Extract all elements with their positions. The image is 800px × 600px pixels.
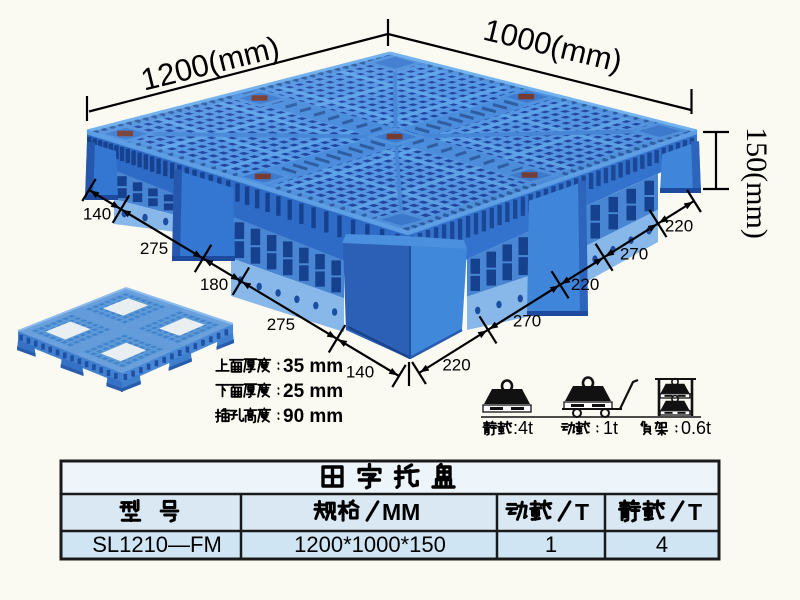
svg-text:220: 220	[665, 216, 693, 235]
svg-text:220: 220	[571, 275, 599, 294]
svg-text:4: 4	[656, 532, 668, 557]
svg-text:T: T	[688, 499, 702, 525]
svg-text:1200*1000*150: 1200*1000*150	[294, 532, 446, 557]
svg-text:1t: 1t	[603, 418, 618, 438]
svg-text:140: 140	[346, 362, 374, 381]
svg-text:150(mm): 150(mm)	[740, 127, 773, 239]
svg-text:275: 275	[140, 239, 168, 258]
svg-text:T: T	[575, 499, 589, 525]
svg-text:0.6t: 0.6t	[681, 418, 711, 438]
svg-text:180: 180	[200, 275, 228, 294]
svg-text::4t: :4t	[513, 418, 533, 438]
svg-text:140: 140	[83, 205, 111, 224]
svg-text:1: 1	[545, 532, 557, 557]
svg-text:270: 270	[620, 244, 648, 263]
svg-text:35 mm: 35 mm	[283, 356, 343, 377]
svg-text:25 mm: 25 mm	[283, 381, 343, 402]
svg-text:MM: MM	[382, 499, 420, 525]
svg-text:1000(mm): 1000(mm)	[480, 12, 626, 79]
svg-text:SL1210—FM: SL1210—FM	[92, 532, 222, 557]
svg-text:220: 220	[442, 355, 470, 374]
svg-text:275: 275	[267, 315, 295, 334]
svg-text:90 mm: 90 mm	[283, 406, 343, 427]
svg-text:270: 270	[513, 311, 541, 330]
